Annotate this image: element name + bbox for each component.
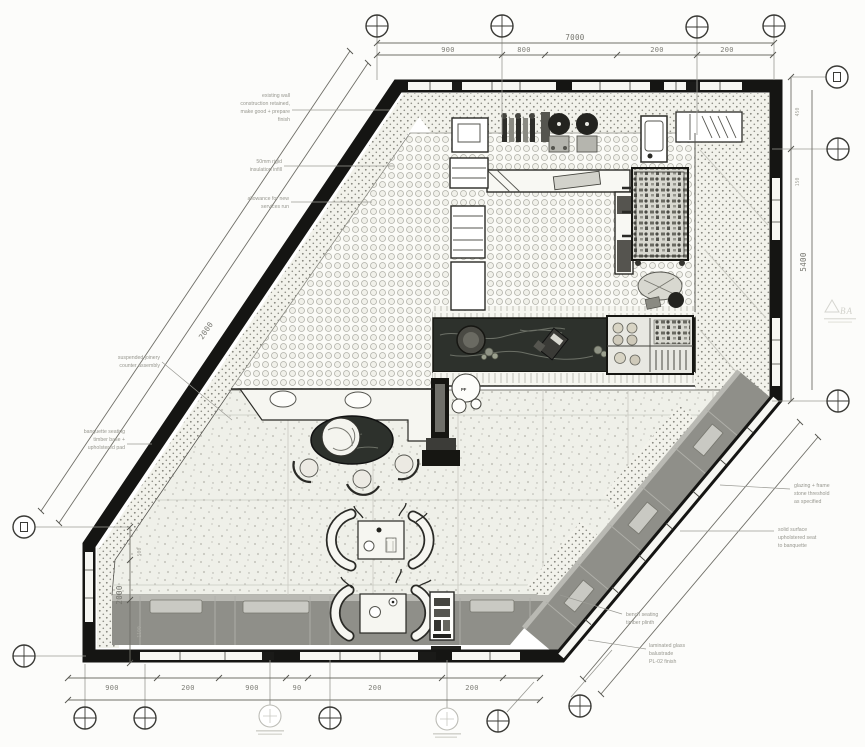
banquette-table xyxy=(150,600,202,613)
svg-text:construction retained,: construction retained, xyxy=(240,101,290,107)
grid-bubble xyxy=(686,16,708,38)
counter-canister-lid xyxy=(463,332,479,348)
svg-text:glazing + frame: glazing + frame xyxy=(794,483,830,489)
seat-cushion xyxy=(270,391,296,407)
floor-plan-drawing: PF xyxy=(0,0,865,747)
svg-text:counter assembly: counter assembly xyxy=(119,363,160,369)
svg-text:balustrade: balustrade xyxy=(649,651,673,657)
pastry-display-case xyxy=(607,316,693,374)
svg-text:banquette seating: banquette seating xyxy=(84,429,125,435)
svg-text:allowance for new: allowance for new xyxy=(247,196,289,202)
dim-left-overall: 2000 xyxy=(115,585,124,604)
svg-text:bench seating: bench seating xyxy=(626,612,658,618)
planter-label: PF xyxy=(461,387,467,392)
drawing-sheet: PF xyxy=(0,0,865,747)
grid-bubble xyxy=(74,707,96,729)
grid-bubble xyxy=(366,15,388,37)
faint-note xyxy=(256,730,284,732)
grid-bubble xyxy=(134,707,156,729)
svg-text:insulation infill: insulation infill xyxy=(250,167,282,173)
grid-bubble xyxy=(826,66,848,88)
faint-note xyxy=(435,737,457,738)
grid-bubble xyxy=(569,695,591,717)
grid-bubble xyxy=(763,15,785,37)
grid-bubble xyxy=(827,138,849,160)
svg-text:existing wall: existing wall xyxy=(262,93,290,99)
svg-text:upholstered pad: upholstered pad xyxy=(88,445,125,451)
seat-cushion xyxy=(345,392,371,408)
grid-bubble xyxy=(13,516,35,538)
dim-top-seg: 200 xyxy=(650,46,664,54)
sink-unit xyxy=(641,116,667,162)
faint-note xyxy=(433,733,461,735)
dim-right-overall: 5400 xyxy=(799,252,808,271)
dim-left-minor: 1100 xyxy=(137,626,143,638)
dim-bottom-seg: 90 xyxy=(292,684,301,692)
dim-top-seg: 800 xyxy=(517,46,531,54)
grid-bubble xyxy=(259,705,281,727)
svg-text:50mm rigid: 50mm rigid xyxy=(256,159,282,165)
grid-bubble xyxy=(436,708,458,730)
svg-text:timber plinth: timber plinth xyxy=(626,620,654,626)
svg-text:to banquette: to banquette xyxy=(778,543,807,549)
svg-text:finish: finish xyxy=(278,117,290,123)
dim-top-seg: 200 xyxy=(720,46,734,54)
grid-bubble xyxy=(487,710,509,732)
dim-top-overall: 7000 xyxy=(565,33,584,42)
dim-left-minor: 500 xyxy=(137,548,143,557)
svg-text:solid surface: solid surface xyxy=(778,527,807,533)
dim-top-seg: 900 xyxy=(441,46,455,54)
svg-text:laminated glass: laminated glass xyxy=(649,643,685,649)
dim-bottom-seg: 200 xyxy=(368,684,382,692)
faint-note xyxy=(258,734,282,735)
corner-shelf xyxy=(676,112,742,142)
banquette-table xyxy=(470,600,514,612)
svg-text:PL-02 finish: PL-02 finish xyxy=(649,659,677,665)
svg-text:timber base +: timber base + xyxy=(93,437,125,443)
dim-bottom-seg: 900 xyxy=(245,684,259,692)
service-counter xyxy=(433,306,695,386)
grid-bubble xyxy=(491,15,513,37)
dim-bottom-seg: 200 xyxy=(181,684,195,692)
grid-bubble xyxy=(13,645,35,667)
grid-bubble xyxy=(827,390,849,412)
svg-text:upholstered seat: upholstered seat xyxy=(778,535,817,541)
dim-bottom-seg: 900 xyxy=(105,684,119,692)
tray-rack xyxy=(451,206,485,310)
grid-bubble xyxy=(319,707,341,729)
svg-text:suspended joinery: suspended joinery xyxy=(118,355,161,361)
svg-text:as specified: as specified xyxy=(794,499,822,505)
dim-right-minor: 150 xyxy=(795,178,801,187)
svg-text:stone threshold: stone threshold xyxy=(794,491,830,497)
hatch-band-right-corridor xyxy=(695,133,772,398)
svg-text:services run: services run xyxy=(261,204,289,210)
display-fridge xyxy=(622,168,688,266)
dim-right-minor: 450 xyxy=(795,108,801,117)
banquette-table xyxy=(243,601,309,613)
undercounter-fridge xyxy=(617,240,631,272)
stamp-text: BA xyxy=(840,306,853,316)
svg-text:make good + prepare: make good + prepare xyxy=(241,109,291,115)
dim-bottom-seg: 200 xyxy=(465,684,479,692)
